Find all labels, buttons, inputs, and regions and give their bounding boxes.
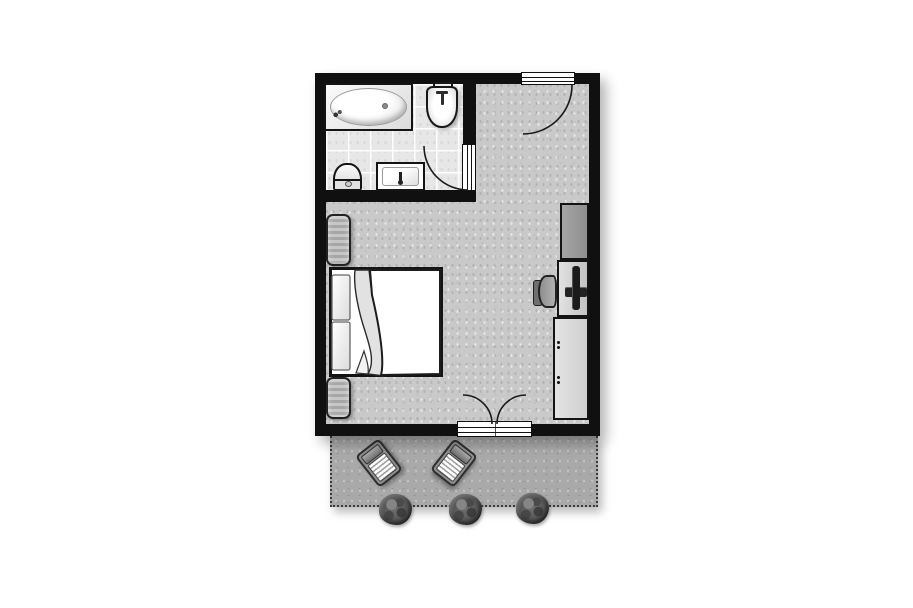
shrub-icon	[449, 494, 482, 525]
washbasin	[426, 86, 458, 128]
bed-drawing	[329, 267, 443, 379]
nightstand-lower	[326, 377, 351, 419]
handle-icon	[557, 381, 560, 384]
faucet-icon	[441, 92, 444, 105]
double-bed	[329, 267, 443, 377]
pillow	[332, 275, 350, 320]
handle-icon	[557, 341, 560, 344]
entry-door	[521, 72, 575, 85]
faucet-icon	[333, 110, 342, 117]
wardrobe	[560, 203, 589, 260]
handle-icon	[557, 346, 560, 349]
bathroom-partition-wall	[315, 190, 476, 202]
bathroom-partition-wall	[463, 84, 476, 144]
french-doors	[457, 421, 532, 437]
toilet	[333, 163, 362, 191]
nightstand-upper	[326, 214, 351, 266]
bathtub	[324, 83, 413, 131]
shrub-icon	[516, 493, 549, 524]
handle-icon	[557, 376, 560, 379]
bathtub-basin	[330, 88, 407, 126]
bathroom-door	[462, 144, 476, 191]
pillow	[332, 322, 350, 370]
floor-plan-canvas	[0, 0, 913, 608]
desk-chair	[538, 275, 557, 308]
faucet-icon	[398, 180, 403, 185]
flush-button-icon	[345, 181, 352, 187]
shrub-icon	[379, 494, 412, 525]
vanity-sink	[376, 162, 425, 191]
tv	[572, 266, 580, 310]
sideboard-cabinet	[553, 317, 589, 420]
